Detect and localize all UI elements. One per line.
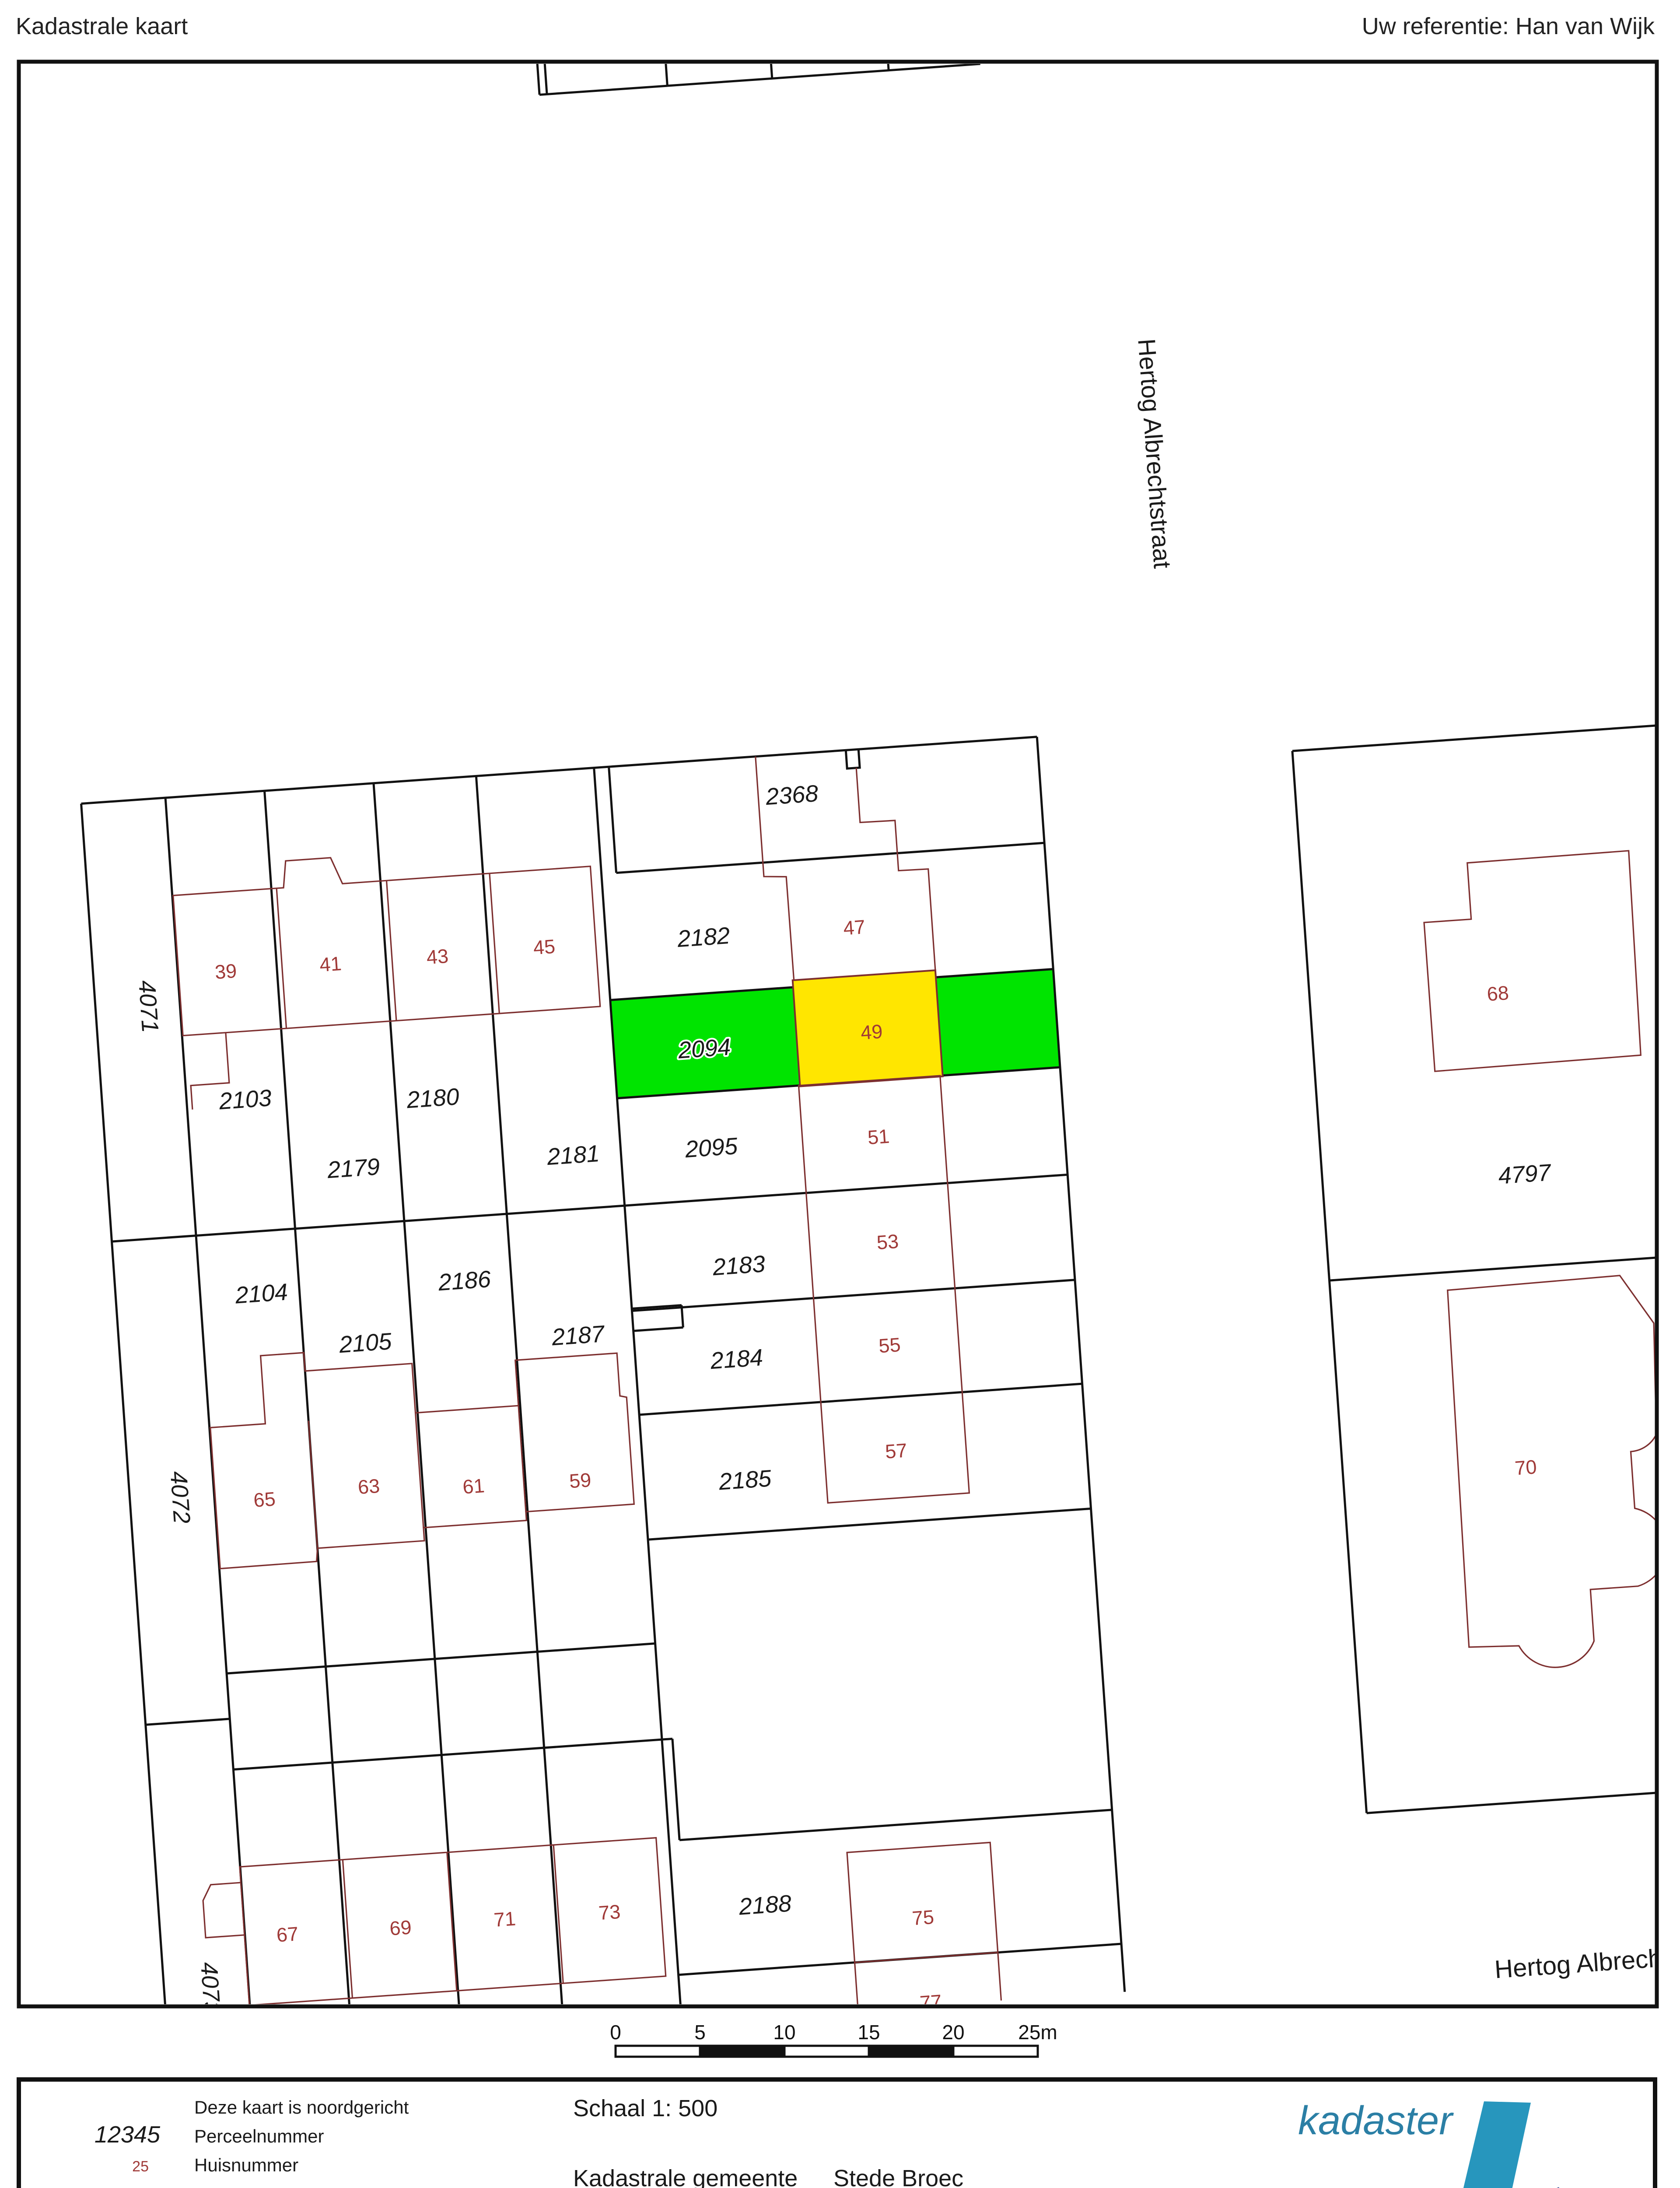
- svg-text:12345: 12345: [94, 2121, 161, 2148]
- svg-text:Schaal 1: 500: Schaal 1: 500: [573, 2095, 717, 2121]
- svg-text:2094: 2094: [677, 1034, 731, 1063]
- svg-text:kadaster: kadaster: [1298, 2098, 1454, 2143]
- svg-text:15: 15: [857, 2021, 880, 2044]
- svg-text:68: 68: [1486, 982, 1509, 1005]
- svg-text:61: 61: [462, 1474, 485, 1498]
- svg-text:69: 69: [389, 1916, 412, 1939]
- svg-text:2182: 2182: [676, 922, 731, 952]
- svg-text:5: 5: [694, 2021, 706, 2044]
- svg-text:71: 71: [493, 1907, 516, 1931]
- svg-text:0: 0: [610, 2021, 621, 2044]
- svg-text:Kadastrale kaart: Kadastrale kaart: [16, 13, 188, 39]
- svg-text:63: 63: [357, 1475, 380, 1498]
- svg-text:2185: 2185: [717, 1465, 773, 1495]
- svg-text:75: 75: [911, 1906, 934, 1929]
- svg-text:59: 59: [568, 1469, 591, 1492]
- svg-text:43: 43: [426, 945, 449, 968]
- svg-text:2179: 2179: [326, 1154, 381, 1183]
- svg-text:2187: 2187: [550, 1321, 606, 1350]
- svg-text:Perceelnummer: Perceelnummer: [194, 2126, 324, 2146]
- svg-text:49: 49: [860, 1020, 883, 1044]
- svg-text:2186: 2186: [437, 1266, 492, 1296]
- svg-text:4797: 4797: [1498, 1159, 1553, 1189]
- svg-text:57: 57: [885, 1439, 908, 1463]
- svg-text:41: 41: [319, 952, 342, 976]
- svg-text:2368: 2368: [764, 780, 819, 810]
- svg-text:2188: 2188: [738, 1890, 792, 1920]
- svg-text:4072: 4072: [165, 1470, 195, 1525]
- svg-text:20: 20: [942, 2021, 964, 2044]
- svg-text:2104: 2104: [234, 1279, 289, 1308]
- svg-text:2103: 2103: [218, 1085, 273, 1115]
- svg-text:2184: 2184: [709, 1344, 764, 1374]
- svg-text:39: 39: [214, 960, 237, 983]
- svg-text:45: 45: [532, 935, 556, 959]
- svg-text:67: 67: [276, 1922, 299, 1946]
- svg-text:70: 70: [1514, 1455, 1537, 1479]
- svg-text:53: 53: [876, 1230, 899, 1254]
- svg-text:25m: 25m: [1018, 2021, 1057, 2044]
- svg-text:10: 10: [773, 2021, 795, 2044]
- svg-text:2180: 2180: [405, 1083, 460, 1113]
- svg-text:Huisnummer: Huisnummer: [194, 2155, 298, 2175]
- svg-text:2183: 2183: [711, 1251, 766, 1280]
- svg-text:Kadastrale gemeente: Kadastrale gemeente: [573, 2165, 798, 2188]
- svg-text:Vastgestelde kadastrale grens: Vastgestelde kadastrale grens: [194, 2185, 440, 2188]
- svg-text:Uw referentie: Han van Wijk: Uw referentie: Han van Wijk: [1362, 13, 1655, 39]
- svg-text:2105: 2105: [338, 1328, 393, 1358]
- svg-text:55: 55: [878, 1333, 901, 1357]
- svg-text:25: 25: [132, 2158, 149, 2175]
- svg-text:2181: 2181: [546, 1140, 600, 1170]
- svg-text:47: 47: [843, 915, 866, 939]
- svg-text:73: 73: [598, 1900, 621, 1924]
- svg-text:2095: 2095: [684, 1133, 739, 1163]
- svg-text:Stede Broec: Stede Broec: [833, 2165, 963, 2188]
- svg-text:65: 65: [253, 1487, 276, 1511]
- svg-text:4071: 4071: [133, 979, 163, 1034]
- svg-text:Deze kaart is noordgericht: Deze kaart is noordgericht: [194, 2097, 409, 2118]
- svg-text:51: 51: [867, 1125, 890, 1149]
